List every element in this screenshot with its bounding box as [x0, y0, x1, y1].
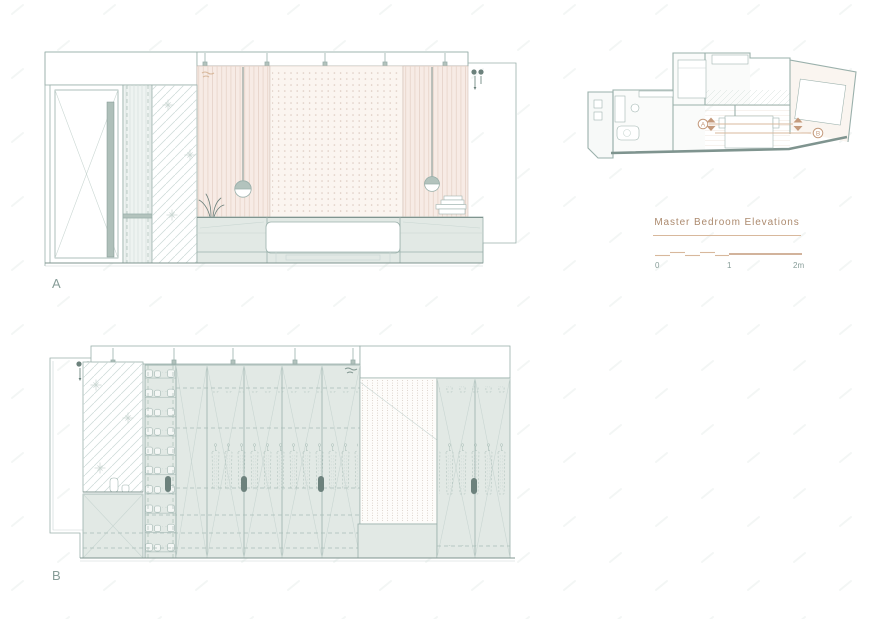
table [631, 104, 639, 112]
scale-label-1: 1 [727, 261, 732, 270]
hanging-clothes [209, 390, 358, 490]
vanity-mirror [83, 362, 143, 492]
vase [110, 478, 118, 492]
elevation-a-label: A [52, 276, 62, 291]
bedroom-door [50, 85, 123, 263]
closet [712, 55, 748, 64]
kitchen-counter [639, 91, 673, 97]
jar [122, 485, 129, 492]
wardrobe-right [437, 378, 510, 558]
bathtub [617, 126, 639, 140]
wardrobe-handle [318, 476, 324, 492]
key-floor-plan: A B [575, 38, 865, 168]
drawing-title: Master Bedroom Elevations [653, 217, 801, 228]
slat-panel [123, 85, 152, 263]
elevation-b-label: B [52, 568, 62, 583]
hanging-clothes [439, 386, 507, 546]
mirror-panel [152, 85, 197, 263]
wardrobe-handle [241, 476, 247, 492]
balcony-chair [594, 112, 602, 120]
wardrobe-strip [705, 90, 790, 105]
sofa [615, 96, 625, 122]
shoe-shelves [145, 365, 176, 558]
drawing-sheet: A [0, 0, 880, 619]
scale-bar: 0 1 2m [650, 246, 815, 274]
scale-bar-segments [655, 253, 802, 256]
section-marker-b-letter: B [816, 130, 820, 137]
elevation-b-drawing [40, 340, 530, 590]
section-marker-a-letter: A [701, 121, 706, 128]
title-block: Master Bedroom Elevations [653, 217, 801, 236]
scale-label-0: 0 [655, 261, 660, 270]
door-handle [107, 102, 114, 257]
elevation-a-drawing [40, 40, 530, 290]
wardrobe-handle [471, 478, 477, 494]
wardrobe-handle [165, 476, 171, 492]
ceiling-spotlights [471, 69, 483, 90]
bed [795, 79, 846, 125]
window-bench [358, 524, 437, 558]
scale-label-2m: 2m [793, 261, 804, 270]
nightstand [773, 118, 779, 128]
nightstand [719, 118, 725, 128]
bed [678, 60, 706, 98]
master-bed [725, 116, 773, 148]
bed-duvet [266, 222, 400, 253]
vanity-cabinet [83, 494, 143, 558]
balcony-chair [594, 100, 602, 108]
window-curtain [358, 378, 437, 558]
